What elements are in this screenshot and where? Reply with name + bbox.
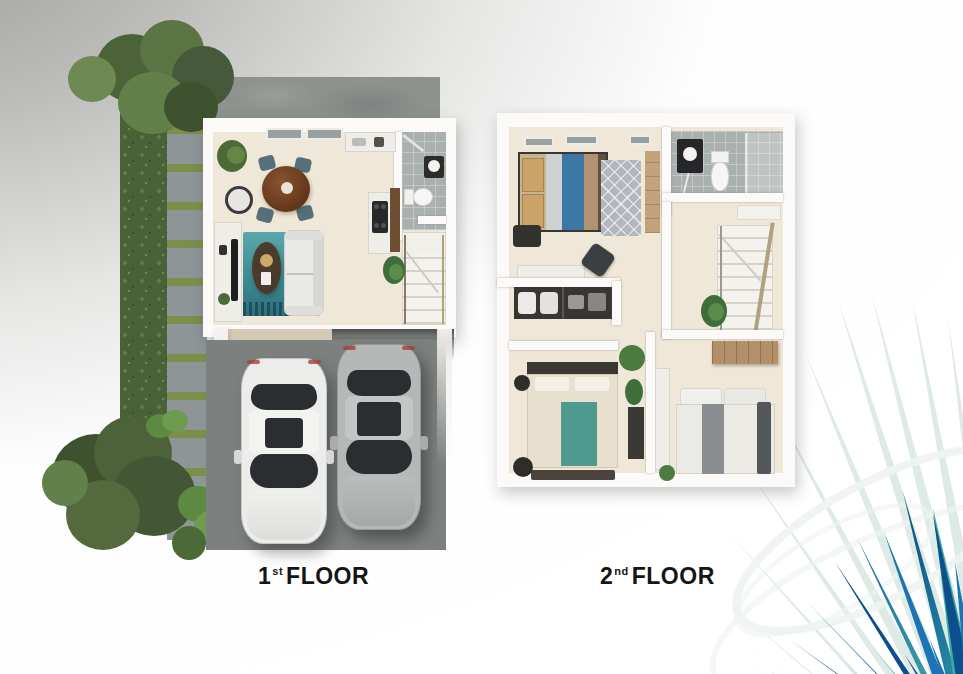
floor-ordinal: nd — [614, 565, 628, 577]
foliage-blob — [162, 410, 188, 432]
wood-wardrobe — [712, 341, 778, 364]
floor-number: 1 — [258, 563, 271, 589]
bed-side-frame — [757, 402, 771, 474]
duvet-stripe-blue — [562, 154, 584, 230]
window — [565, 135, 598, 145]
sofa-armrest — [285, 306, 323, 315]
headboard — [527, 362, 618, 374]
first-floor-label: 1stFLOOR — [258, 563, 369, 590]
car-hood — [247, 490, 321, 540]
duvet-stripe-gray — [546, 154, 562, 230]
sink-bowl — [683, 147, 697, 161]
white-car — [241, 358, 327, 544]
marble-vein — [719, 234, 762, 281]
book — [261, 272, 271, 285]
toilet — [710, 151, 728, 191]
small-appliance — [374, 137, 384, 147]
duvet-stripe-tan — [584, 154, 598, 230]
car-mirror — [234, 450, 242, 464]
stair-railing — [404, 235, 406, 324]
stairwell-left-wall — [662, 202, 671, 339]
burner — [374, 204, 379, 209]
corner-plant-highlight — [227, 146, 245, 164]
floor-number: 2 — [600, 563, 613, 589]
kitchen-tall-cabinet — [390, 188, 400, 252]
sink-bowl — [428, 160, 440, 172]
car-mirror — [330, 436, 338, 450]
car-hood — [343, 476, 415, 526]
window — [266, 128, 303, 140]
stairwell-bottom-wall — [662, 330, 783, 339]
bathroom-vanity — [424, 156, 444, 178]
bedroom3-plant — [659, 465, 675, 481]
real-estate-floorplan-sheet: 1stFLOOR 2ndFLOOR — [0, 0, 963, 674]
taillight — [343, 346, 356, 350]
gray-runner — [702, 404, 724, 474]
bed-bench — [531, 470, 615, 480]
stairwell-bench — [737, 205, 781, 220]
bed-pillow — [522, 194, 544, 228]
car-rear-window — [251, 384, 317, 410]
closet-pillow — [540, 292, 558, 314]
window — [524, 137, 554, 147]
console-decor — [219, 245, 227, 255]
bed-pillow — [680, 388, 722, 405]
burner — [381, 204, 386, 209]
closet-divider — [562, 287, 564, 319]
bedroom2-top-wall — [509, 341, 618, 350]
nightstand-round — [513, 457, 533, 477]
bed-pillow — [575, 377, 609, 391]
shower-area — [745, 133, 783, 196]
burner — [381, 223, 386, 228]
table-centerpiece — [281, 182, 293, 194]
tv-screen — [231, 239, 238, 301]
floor-word: FLOOR — [286, 563, 369, 589]
bed-pillow — [522, 158, 544, 192]
first-floor-plan — [0, 0, 480, 560]
folded-linens — [568, 295, 584, 309]
car-mirror — [420, 436, 428, 450]
shrub-cluster — [146, 410, 190, 444]
closet-pillow — [518, 292, 536, 314]
car-mirror — [326, 450, 334, 464]
round-side-table — [225, 186, 253, 214]
tv-console — [214, 222, 242, 322]
stove — [372, 201, 388, 233]
wardrobe-tan — [645, 151, 660, 233]
coffee-table — [252, 242, 281, 294]
floor-ordinal: st — [272, 565, 283, 577]
silver-car — [337, 344, 421, 530]
car-windshield — [250, 454, 318, 488]
master-bed — [518, 152, 608, 232]
foliage-blob — [68, 56, 116, 102]
central-wall — [646, 332, 655, 473]
diamond-rug — [601, 160, 641, 236]
foliage-blob — [172, 526, 206, 560]
bed-pillow — [535, 377, 569, 391]
toilet-bowl — [711, 162, 729, 191]
bathroom-wall-bottom — [418, 216, 446, 224]
gold-tray — [260, 254, 273, 267]
sofa — [284, 230, 324, 316]
bedroom-wall-bottom — [497, 278, 620, 287]
window — [629, 135, 651, 145]
bathroom-vanity — [677, 139, 703, 173]
side-wall-right — [437, 329, 452, 465]
sofa-cushion-divider — [287, 273, 313, 275]
stair-plant-highlight — [708, 303, 724, 321]
floor-word: FLOOR — [632, 563, 715, 589]
taillight — [402, 346, 415, 350]
second-floor-label: 2ndFLOOR — [600, 563, 715, 590]
kitchen-upper-counter — [345, 132, 396, 152]
stair-plant-highlight — [389, 264, 403, 280]
bed-teal — [527, 362, 618, 480]
dark-cabinet — [513, 225, 541, 247]
taillight — [247, 360, 260, 364]
second-floor-plan — [497, 113, 795, 487]
bedroom2-plant — [619, 345, 645, 371]
sofa-back — [313, 235, 323, 311]
car-sunroof — [357, 402, 401, 436]
staircase — [402, 232, 446, 325]
closet-shelving — [514, 287, 612, 319]
nightstand-round — [514, 375, 530, 391]
stair-landing — [403, 233, 445, 253]
teal-runner — [561, 402, 597, 466]
kitchen-counter — [368, 192, 392, 254]
toilet — [404, 188, 432, 204]
bed-gray — [676, 388, 775, 474]
burner — [374, 223, 379, 228]
bedroom-desk — [517, 265, 585, 279]
stair-railing — [442, 235, 444, 324]
window — [306, 128, 343, 140]
dresser-dark — [628, 407, 644, 459]
console-plant — [218, 293, 230, 305]
closet-stub-wall — [612, 281, 621, 325]
bedroom3-desk — [655, 368, 670, 470]
bedroom2-plant — [625, 379, 643, 405]
car-sunroof — [265, 418, 303, 448]
bathroom-bottom-wall — [662, 193, 783, 202]
folded-linens — [588, 293, 606, 311]
car-windshield — [346, 440, 412, 474]
marble-vein — [405, 251, 439, 293]
toilet-bowl — [413, 188, 433, 206]
car-rear-window — [347, 370, 411, 396]
foliage-blob — [42, 460, 88, 506]
kitchen-sink — [352, 138, 366, 146]
taillight — [308, 360, 321, 364]
first-floor-house — [203, 118, 456, 337]
sofa-armrest — [285, 231, 323, 240]
